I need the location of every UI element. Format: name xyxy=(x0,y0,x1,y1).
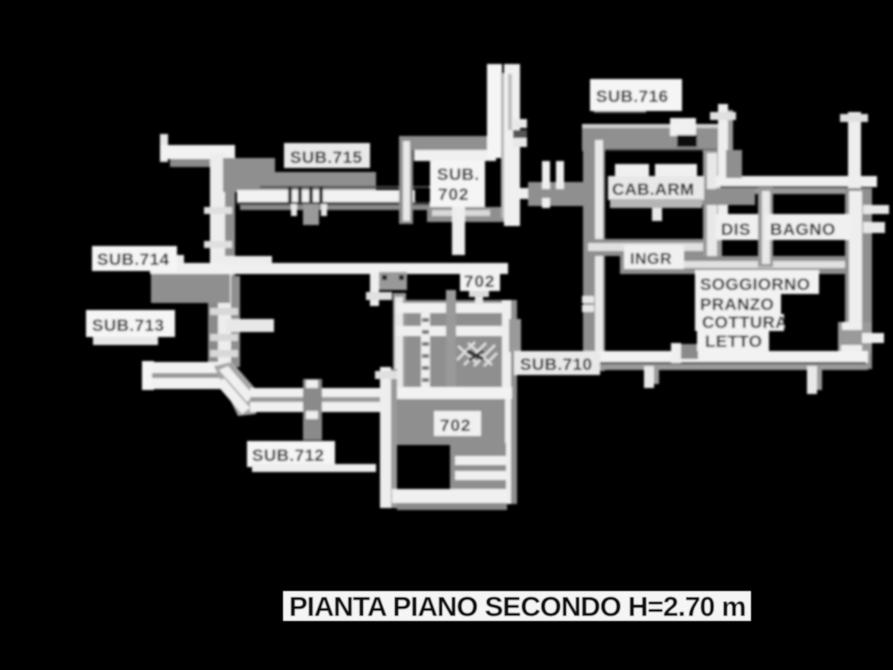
svg-text:702: 702 xyxy=(438,185,469,204)
svg-text:PRANZO: PRANZO xyxy=(700,295,774,314)
svg-text:LETTO: LETTO xyxy=(705,332,762,351)
svg-text:SUB.715: SUB.715 xyxy=(290,148,362,167)
svg-text:CAB.ARM: CAB.ARM xyxy=(612,180,694,199)
svg-text:702: 702 xyxy=(464,272,495,291)
svg-text:SOGGIORNO: SOGGIORNO xyxy=(700,275,810,294)
svg-text:PIANTA PIANO SECONDO H=2.70 m: PIANTA PIANO SECONDO H=2.70 m xyxy=(289,591,746,622)
svg-text:COTTURA: COTTURA xyxy=(702,313,788,332)
svg-text:SUB.713: SUB.713 xyxy=(92,316,164,335)
svg-text:SUB.712: SUB.712 xyxy=(252,446,324,465)
svg-text:SUB.710: SUB.710 xyxy=(520,355,592,374)
svg-text:702: 702 xyxy=(440,416,471,435)
svg-text:INGR: INGR xyxy=(630,251,672,268)
svg-text:SUB.714: SUB.714 xyxy=(97,250,170,269)
svg-text:SUB.: SUB. xyxy=(437,165,480,184)
svg-text:DIS: DIS xyxy=(721,220,751,239)
svg-text:BAGNO: BAGNO xyxy=(770,220,836,239)
svg-text:SUB.716: SUB.716 xyxy=(596,87,668,106)
